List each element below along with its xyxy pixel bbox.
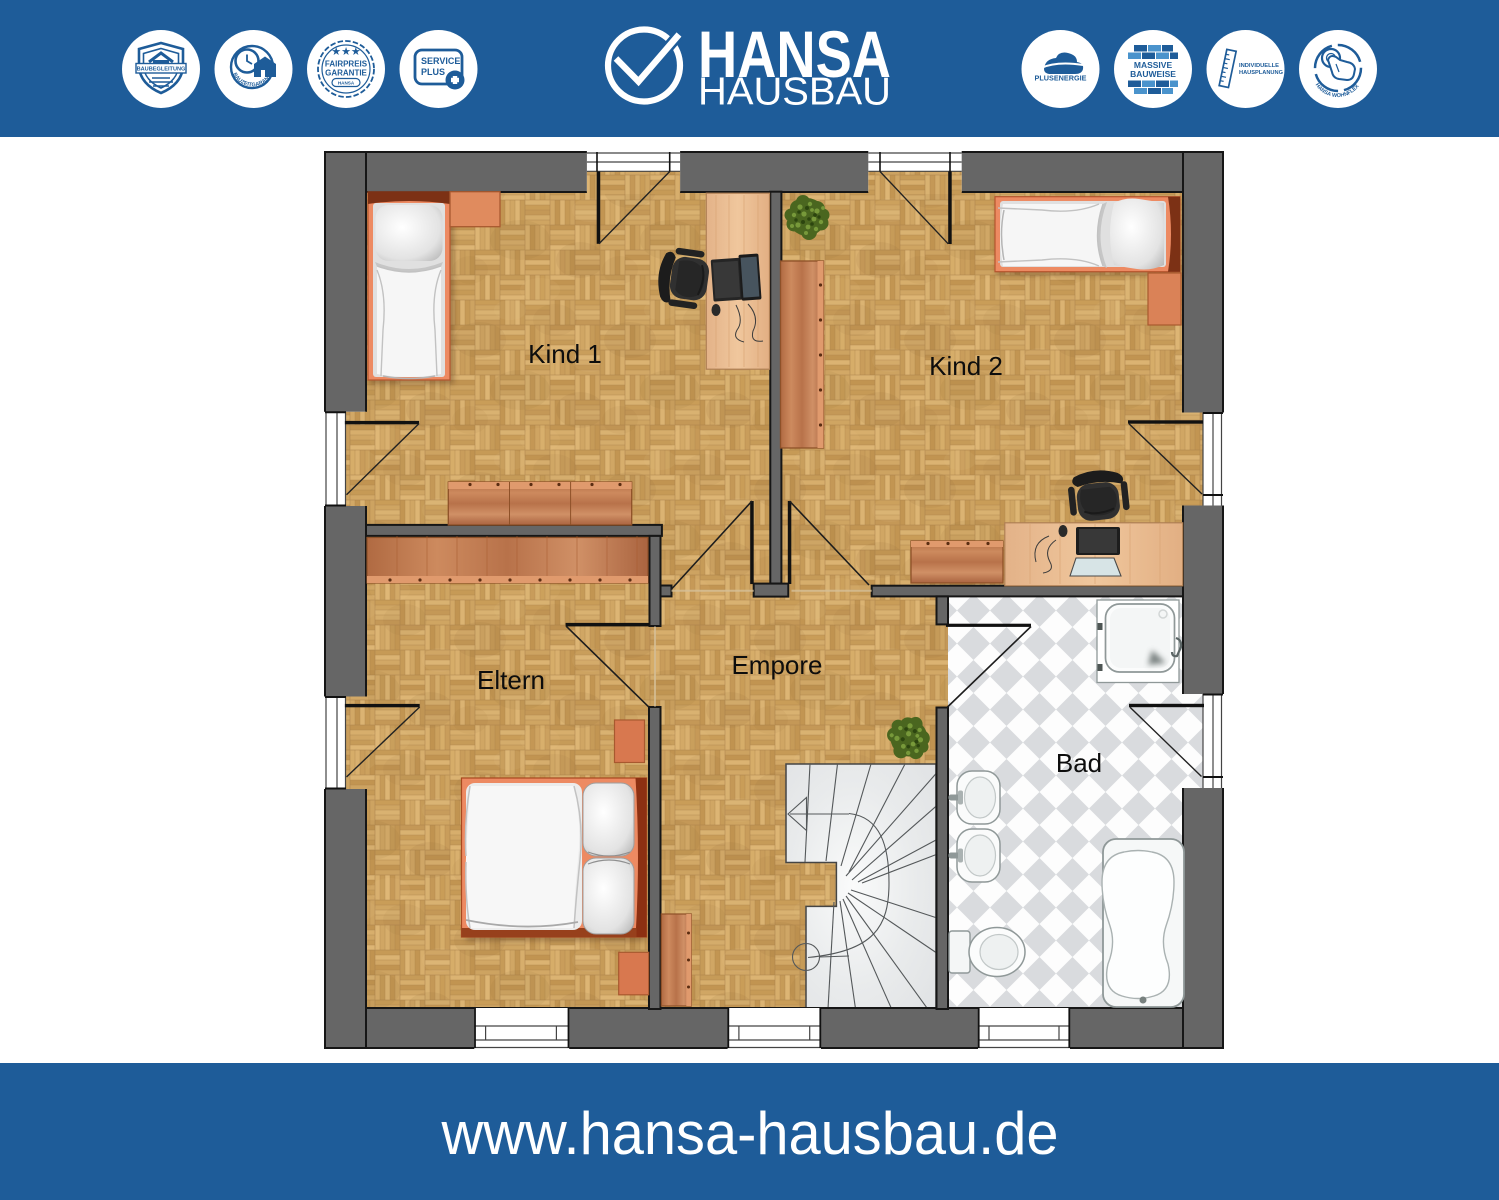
- svg-text:www.hansa-hausbau.de: www.hansa-hausbau.de: [441, 1100, 1059, 1167]
- svg-text:GARANTIE: GARANTIE: [325, 69, 367, 78]
- svg-text:★★★: ★★★: [331, 46, 361, 58]
- svg-text:SERVICE: SERVICE: [421, 56, 460, 66]
- svg-text:HAUSBAU: HAUSBAU: [698, 71, 891, 114]
- svg-text:Bad: Bad: [1056, 748, 1102, 778]
- svg-text:HAUSPLANUNG: HAUSPLANUNG: [1239, 70, 1283, 76]
- svg-text:Kind 1: Kind 1: [528, 339, 602, 369]
- svg-text:PLUSENERGIE: PLUSENERGIE: [1035, 74, 1087, 83]
- svg-text:HANSA: HANSA: [338, 81, 355, 86]
- svg-text:Kind 2: Kind 2: [929, 351, 1003, 381]
- svg-text:FAIRPREIS: FAIRPREIS: [325, 60, 368, 69]
- svg-text:INDIVIDUELLE: INDIVIDUELLE: [1239, 63, 1279, 69]
- svg-text:Empore: Empore: [731, 650, 822, 680]
- svg-text:PLUS: PLUS: [421, 67, 445, 77]
- svg-text:Eltern: Eltern: [477, 665, 545, 695]
- svg-text:BAUWEISE: BAUWEISE: [1130, 69, 1176, 79]
- svg-text:BAUBEGLEITUNG: BAUBEGLEITUNG: [137, 67, 186, 73]
